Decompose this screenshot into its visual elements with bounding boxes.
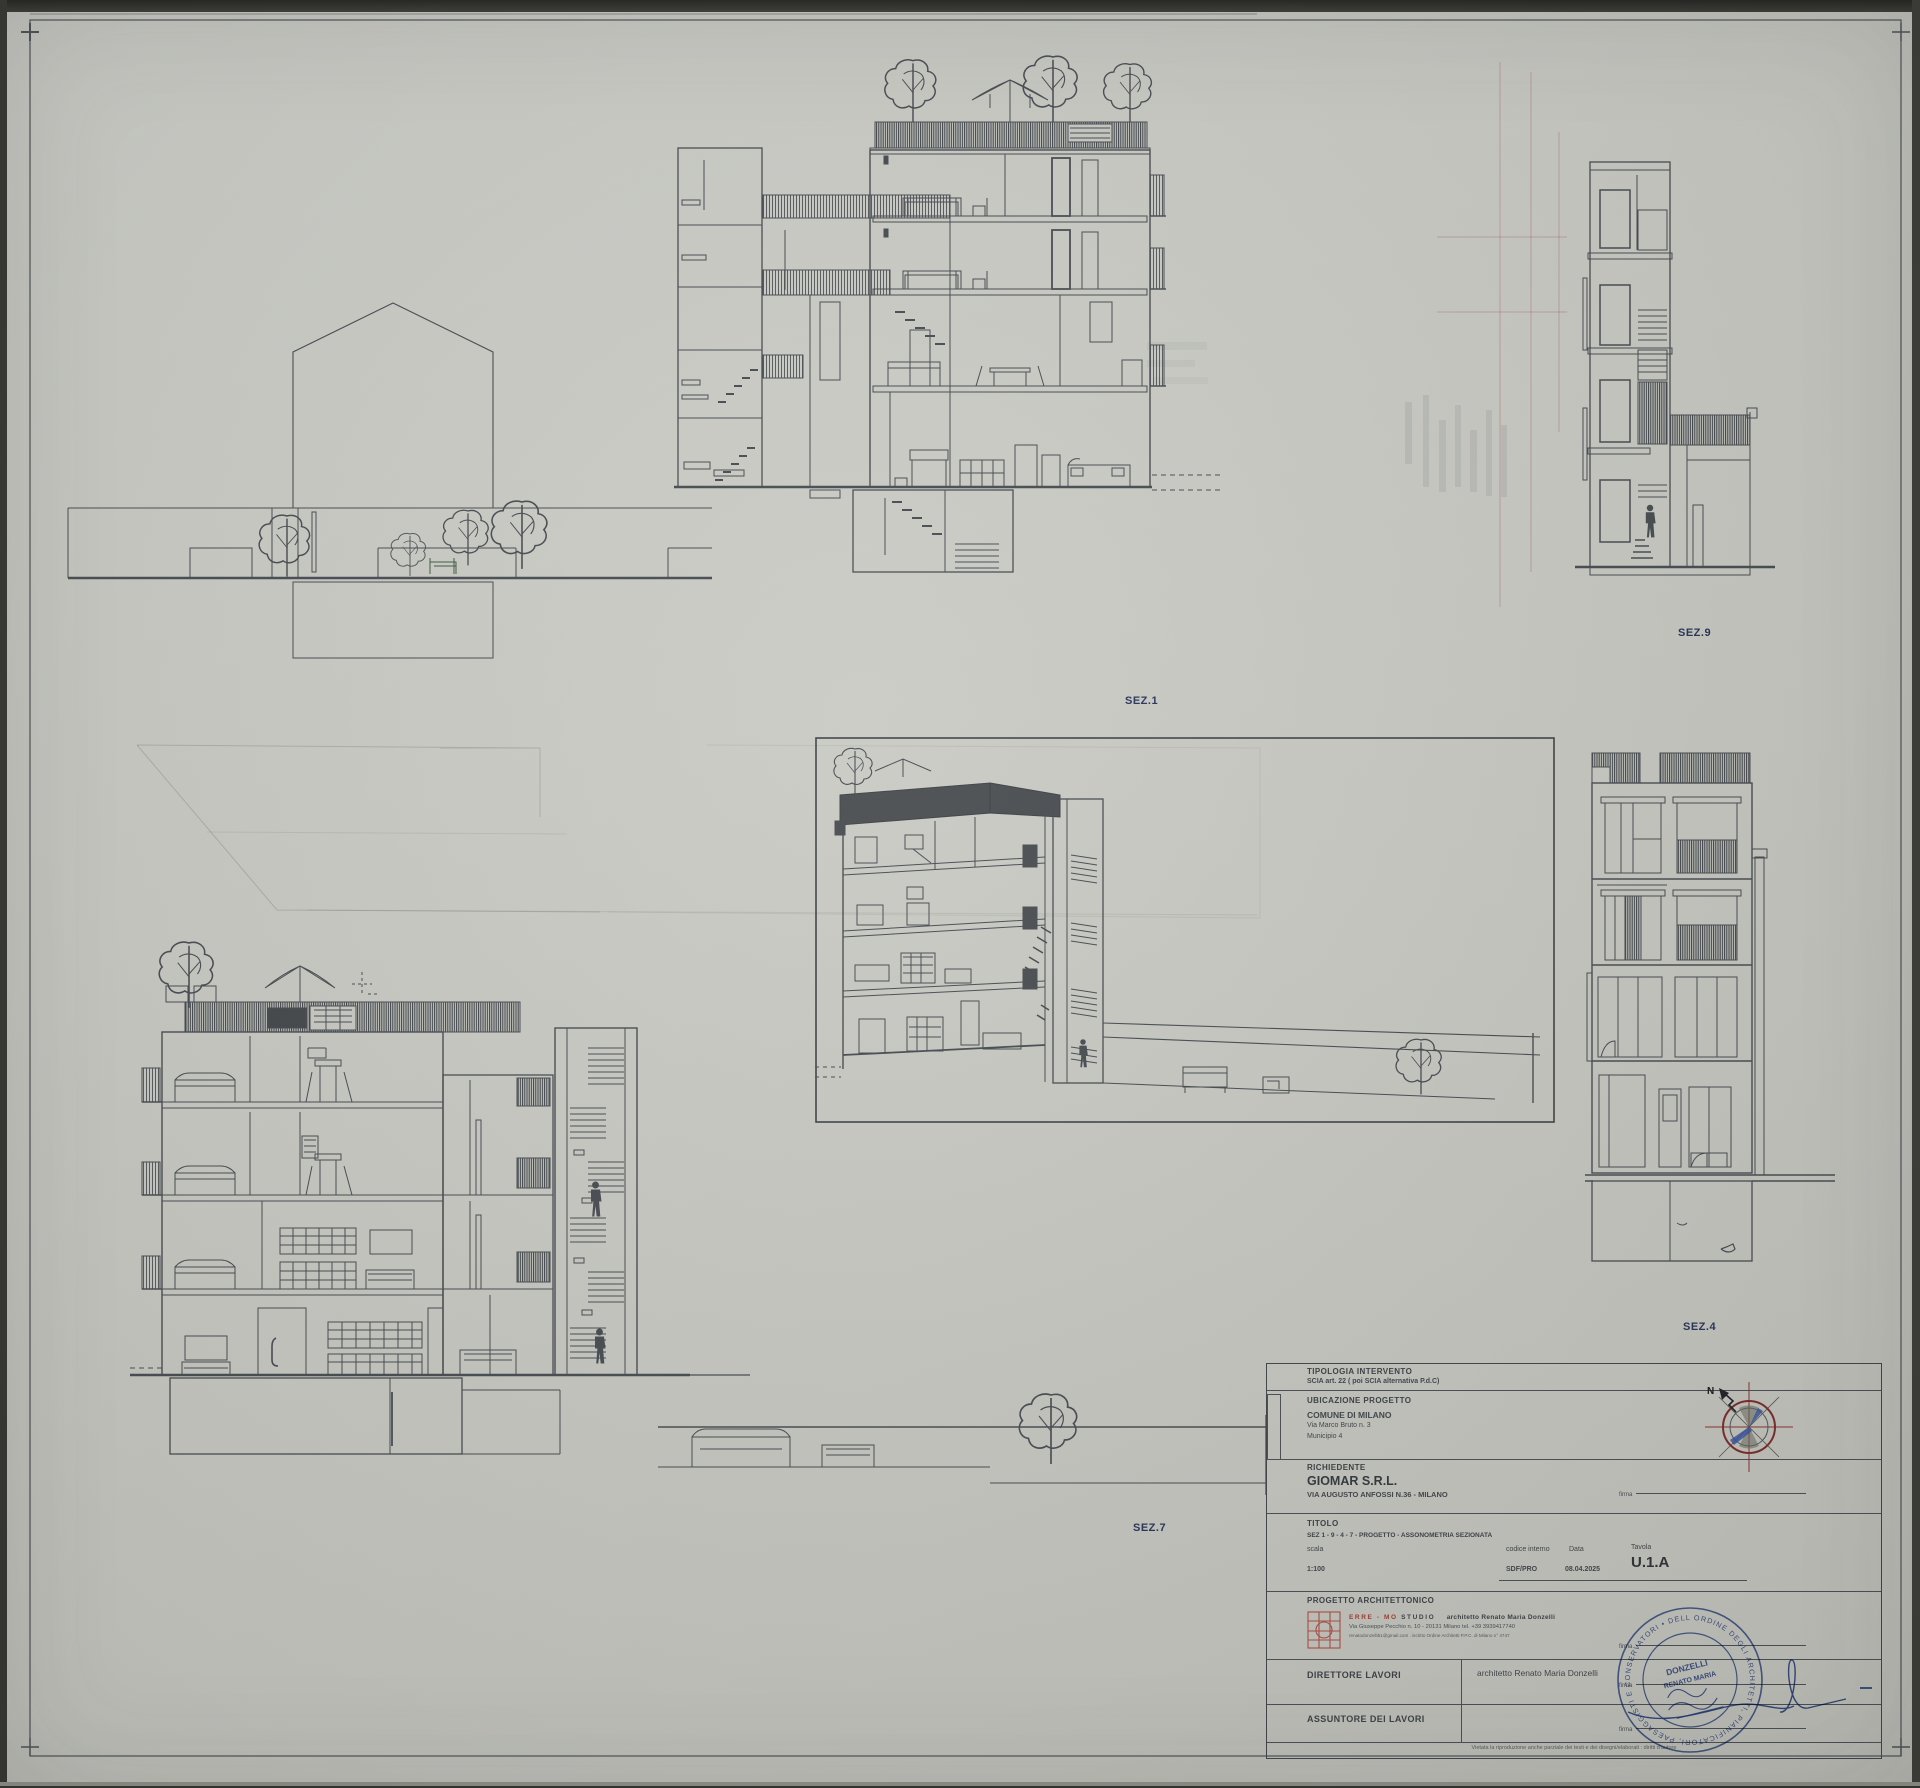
tipologia-value: SCIA art. 22 ( poi SCIA alternativa P.d.… — [1307, 1378, 1439, 1385]
ubicazione-comune: COMUNE DI MILANO — [1307, 1410, 1392, 1420]
drawing-sheet-photo: { "sheet": { "section_labels": { "sez1":… — [0, 0, 1920, 1786]
axonometric-drawing — [815, 737, 1555, 1123]
richiedente-nome: GIOMAR S.R.L. — [1307, 1474, 1397, 1488]
photo-edge-top — [0, 0, 1920, 12]
codice-interno-value: SDF/PRO — [1506, 1566, 1537, 1573]
compass-rose-icon: N — [1703, 1380, 1795, 1474]
ubicazione-via: Via Marco Bruto n. 3 — [1307, 1422, 1371, 1429]
sez1-label: SEZ.1 — [1125, 695, 1158, 707]
tipologia-label: TIPOLOGIA INTERVENTO — [1307, 1367, 1412, 1376]
direttore-lavori-label: DIRETTORE LAVORI — [1307, 1670, 1401, 1680]
studio-architect: architetto Renato Maria Donzelli — [1447, 1614, 1556, 1621]
compass-north-label: N — [1707, 1386, 1714, 1397]
data-label: Data — [1569, 1546, 1584, 1553]
sez9-section-drawing — [1575, 150, 1815, 620]
titolo-label: TITOLO — [1307, 1519, 1339, 1528]
studio-name-black: STUDIO — [1401, 1614, 1435, 1621]
photo-edge-left — [0, 0, 7, 1786]
studio-address-line: Via Giuseppe Pecchio n. 10 - 20131 Milan… — [1349, 1624, 1515, 1630]
title-block-side-box — [1267, 1394, 1281, 1460]
sez7-label: SEZ.7 — [1133, 1522, 1166, 1534]
studio-contacts-line: renatodonzelli51@gmail.com . iscritto Or… — [1349, 1633, 1510, 1638]
studio-name-line: ERRE - MO STUDIO architetto Renato Maria… — [1349, 1614, 1555, 1621]
scala-label: scala — [1307, 1546, 1323, 1553]
data-value: 08.04.2025 — [1565, 1566, 1600, 1573]
studio-logo — [1307, 1611, 1341, 1649]
sez1-section-drawing — [660, 50, 1355, 695]
codice-interno-label: codice interno — [1506, 1546, 1550, 1553]
titolo-underline — [1499, 1580, 1747, 1581]
tavola-value: U.1.A — [1631, 1554, 1669, 1571]
tavola-label: Tavola — [1631, 1544, 1651, 1551]
richiedente-label: RICHIEDENTE — [1307, 1463, 1366, 1472]
assuntore-lavori-label: ASSUNTORE DEI LAVORI — [1307, 1714, 1425, 1724]
photo-edge-right — [1912, 0, 1920, 1786]
studio-name-red: ERRE - MO — [1349, 1614, 1398, 1621]
firma-richiedente: firma — [1619, 1492, 1806, 1498]
ground-strip-drawing — [650, 1375, 1275, 1515]
architect-order-stamp: ORDINE DEGLI ARCHITETTI, PIANIFICATORI, … — [1580, 1592, 1910, 1788]
richiedente-indirizzo: VIA AUGUSTO ANFOSSI N.36 - MILANO — [1307, 1490, 1448, 1499]
sez4-elevation-drawing — [1585, 745, 1845, 1305]
sez9-label: SEZ.9 — [1678, 627, 1711, 639]
titolo-value: SEZ 1 - 9 - 4 - 7 - PROGETTO - ASSONOMET… — [1307, 1532, 1492, 1539]
sez4-label: SEZ.4 — [1683, 1321, 1716, 1333]
paper-sheet: SEZ.1 SEZ.9 SEZ.4 SEZ.7 TIPOLOGIA INTERV… — [7, 12, 1912, 1786]
ubicazione-label: UBICAZIONE PROGETTO — [1307, 1396, 1411, 1405]
ubicazione-municipio: Municipio 4 — [1307, 1433, 1342, 1440]
title-block-vertical-divider — [1461, 1659, 1462, 1742]
scala-value: 1:100 — [1307, 1566, 1325, 1573]
firma-label: firma — [1619, 1492, 1632, 1498]
progetto-architettonico-label: PROGETTO ARCHITETTONICO — [1307, 1596, 1434, 1605]
site-section-drawing — [60, 280, 720, 680]
